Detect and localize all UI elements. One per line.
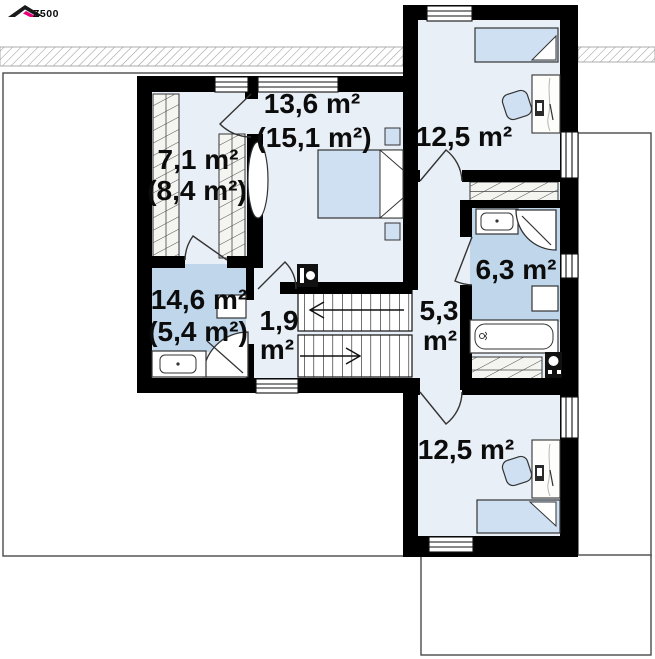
- logo-text: Z500: [33, 8, 59, 20]
- label-wardrobe-alt: (8,4 m²): [147, 175, 247, 206]
- label-bathroom1-alt: (5,4 m²): [148, 316, 248, 347]
- roof-outline-right: [578, 133, 651, 556]
- single-bed-icon: [477, 500, 560, 533]
- window: [561, 397, 578, 438]
- roof-hatch-band-right: [578, 47, 655, 62]
- column-icon: [248, 142, 268, 218]
- roof-outline-bottom: [421, 555, 651, 655]
- window: [429, 537, 473, 552]
- label-bedroom1-area: 13,6 m²: [264, 88, 361, 119]
- chimney-icon: [297, 264, 318, 287]
- wall-bedroom3-top-b: [462, 378, 578, 395]
- window: [215, 77, 248, 92]
- roof-hatch-band-left: [0, 47, 403, 66]
- nightstand-icon: [385, 128, 400, 145]
- label-bedroom3-area: 12,5 m²: [418, 434, 515, 465]
- desk-icon: [532, 75, 560, 133]
- double-bed-icon: [318, 150, 403, 218]
- wall-bedroom2-bottom: [462, 170, 560, 182]
- wall-bedroom2-bottom-stub: [403, 170, 420, 182]
- wall-bathroom2-top: [460, 200, 560, 208]
- window: [256, 379, 298, 393]
- washer-icon: [532, 286, 558, 311]
- label-bedroom1-alt: (15,1 m²): [256, 122, 371, 153]
- sink-icon: [476, 209, 518, 234]
- label-bedroom2-area: 12,5 m²: [416, 121, 513, 152]
- wall-bedroom3-left: [403, 378, 418, 557]
- single-bed-icon: [475, 28, 558, 62]
- brand-logo: Z500: [8, 5, 59, 20]
- wall-hall-bath2-a: [460, 208, 472, 237]
- wall-wardrobe-bath-a: [137, 256, 185, 268]
- bathtub-icon: [470, 320, 558, 353]
- label-bathroom2-area: 6,3 m²: [476, 254, 557, 285]
- label-bathroom1-area: 14,6 m²: [151, 284, 248, 315]
- label-wardrobe-area: 7,1 m²: [158, 144, 239, 175]
- closet-hatch-hall: [470, 182, 558, 201]
- window: [561, 132, 578, 178]
- window: [561, 254, 578, 278]
- window: [427, 6, 472, 21]
- label-corridor-area: 1,9: [260, 305, 299, 336]
- label-corridor-unit: m²: [260, 334, 294, 365]
- floorplan-canvas: 7,1 m² (8,4 m²) 13,6 m² (15,1 m²) 12,5 m…: [0, 0, 655, 659]
- sink-icon: [152, 351, 206, 377]
- label-hall-area: 5,3: [420, 295, 459, 326]
- desk-icon: [532, 440, 560, 498]
- label-hall-unit: m²: [423, 325, 457, 356]
- toilet-icon: [545, 352, 562, 378]
- floorplan-drawing: 7,1 m² (8,4 m²) 13,6 m² (15,1 m²) 12,5 m…: [0, 0, 655, 659]
- wall-right: [560, 5, 578, 557]
- nightstand-icon: [385, 223, 400, 240]
